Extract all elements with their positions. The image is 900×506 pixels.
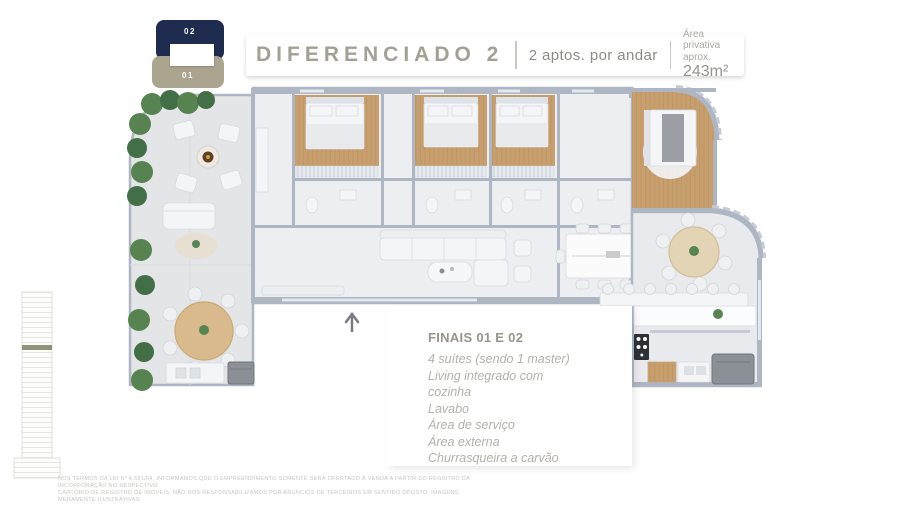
feature-item: Living integrado com	[428, 368, 632, 385]
feature-item: Lavabo	[428, 401, 632, 418]
tree-icon	[128, 309, 150, 331]
tree-icon	[141, 93, 163, 115]
charcoal-grill	[228, 362, 254, 384]
highlighted-floor	[22, 345, 52, 350]
apartments-per-floor: 2 aptos. por andar	[529, 47, 658, 64]
tree-icon	[197, 91, 215, 109]
feature-item: Churrasqueira a carvão	[428, 450, 632, 467]
armchair	[514, 240, 531, 256]
unit-info-card: FINAIS 01 E 02 4 suítes (sendo 1 master)…	[386, 306, 632, 466]
coffee-table	[428, 262, 472, 282]
legal-disclaimer-line: NOS TERMOS DA LEI Nº 4.591/64, INFORMAMO…	[58, 476, 488, 490]
north-arrow-icon	[346, 314, 358, 331]
bed	[306, 97, 364, 149]
outdoor-counter	[166, 363, 224, 383]
tree-icon	[160, 90, 180, 110]
feature-item: Área externa	[428, 434, 632, 451]
armchair	[514, 266, 531, 282]
outdoor-sofa	[163, 203, 215, 229]
tree-icon	[134, 342, 154, 362]
master-suite	[632, 87, 721, 213]
private-area-value: 243m²	[683, 63, 744, 81]
header-divider	[670, 41, 671, 69]
bed	[496, 97, 548, 147]
left-terrace	[127, 90, 254, 391]
tree-icon	[135, 275, 155, 295]
master-bed	[644, 110, 696, 166]
stove	[634, 334, 649, 360]
tv-console	[262, 286, 344, 295]
legal-disclaimer: NOS TERMOS DA LEI Nº 4.591/64, INFORMAMO…	[58, 476, 488, 504]
tree-icon	[127, 138, 147, 158]
private-area-block: Área privativa aprox. 243m²	[683, 29, 744, 82]
floor-badge-card	[170, 44, 214, 66]
outdoor-rug	[175, 233, 217, 259]
bed	[424, 97, 478, 147]
tree-icon	[127, 186, 147, 206]
apartment-interior	[251, 88, 671, 303]
legal-disclaimer-line: CARTÓRIO DE REGISTRO DE IMÓVEIS. NÃO NOS…	[58, 490, 488, 504]
barbecue-grill	[712, 354, 754, 384]
header-card: DIFERENCIADO 2 2 aptos. por andar Área p…	[246, 34, 744, 76]
building-key-elevation	[14, 292, 60, 478]
service-counter	[256, 128, 268, 192]
wood-cabinet	[648, 362, 676, 382]
unit-info-heading: FINAIS 01 E 02	[428, 330, 632, 345]
wardrobe	[296, 166, 378, 177]
wardrobe	[492, 166, 554, 177]
tree-icon	[131, 369, 153, 391]
feature-item: 4 suítes (sendo 1 master)	[428, 351, 632, 368]
tree-icon	[177, 92, 199, 114]
feature-item: Área de serviço	[428, 417, 632, 434]
tree-icon	[130, 239, 152, 261]
floorplan-page: 02 01 DIFERENCIADO 2 2 aptos. por andar …	[0, 0, 900, 506]
floor-number-bottom: 01	[154, 71, 222, 80]
kitchen-sink	[678, 362, 710, 382]
fire-pit-table	[197, 146, 219, 168]
page-title: DIFERENCIADO 2	[256, 43, 503, 67]
wardrobe	[415, 166, 486, 177]
tree-icon	[131, 161, 153, 183]
floor-number-top: 02	[156, 27, 224, 36]
header-divider	[515, 41, 516, 69]
feature-item: cozinha	[428, 384, 632, 401]
private-area-label: Área privativa aprox.	[683, 29, 744, 64]
tree-icon	[129, 113, 151, 135]
